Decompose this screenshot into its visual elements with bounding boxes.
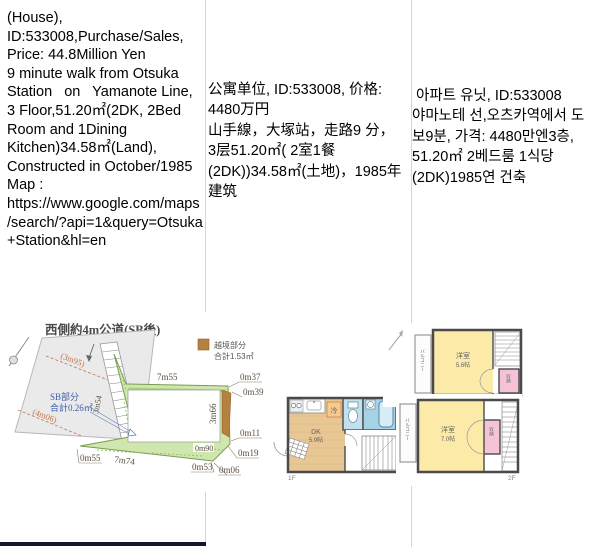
floor-plan-2f: バルコニー 収納 洋室 7.0帖 2F [396,394,522,486]
table-bottom-border [0,542,206,546]
setback-total: 合計0.26㎡ [50,402,93,413]
balcony-3f-label: バルコニー [420,349,426,372]
stairs-2f [502,402,518,471]
cell-description-chinese: 公寓单位, ID:533008, 价格: 4480万円 山手線，大塚站，走路9 … [208,80,409,202]
dk-size: 5.9帖 [309,436,323,444]
room-3f-label: 洋室 [456,351,470,360]
cell-description-korean: 아파트 유닛, ID:533008 야마노테 선,오츠카역에서 도 보9분, 가… [412,86,613,188]
measure-0m90: 0m90 [195,444,213,453]
measure-0m39: 0m39 [243,387,264,397]
fridge-label: 冷 [331,406,338,415]
property-listing-table: (House), ID:533008,Purchase/Sales, Price… [0,0,616,547]
closet-2f-label: 収納 [489,426,495,438]
floor2-label: 2F [508,475,516,482]
measure-0m06: 0m06 [219,465,240,475]
measure-0m55: 0m55 [80,453,101,463]
measure-0m37: 0m37 [240,372,261,382]
setback-label: SB部分 [50,391,79,402]
toilet-tank [348,402,358,408]
measure-0m19: 0m19 [238,448,259,458]
measure-top: 7m55 [157,372,178,382]
measure-right: 3m66 [208,403,218,424]
floor1-label: 1F [288,475,296,482]
closet-3f-label: 収納 [506,373,512,385]
room-2f-size: 7.0帖 [441,435,455,443]
room-2f-label: 洋室 [441,425,455,434]
closet-2f [484,420,500,454]
room-3f-size: 5.6帖 [456,361,470,369]
land-plot-diagram: 西側約4m公道(SB後) 越境部分 合計1.53㎡ (3m95) (4m06) [2,312,306,492]
toilet-icon [349,410,358,423]
encroachment-label: 越境部分 [214,340,246,350]
measure-0m11: 0m11 [240,428,260,438]
cell-description-english: (House), ID:533008,Purchase/Sales, Price… [7,9,206,251]
stairs-1f [362,436,396,470]
encroachment-swatch [198,339,209,350]
encroachment-total: 合計1.53㎡ [214,351,254,361]
building-footprint [128,390,220,442]
balcony-2f-label: バルコニー [405,418,411,441]
measure-0m53: 0m53 [192,462,213,472]
kitchen-counter [289,399,325,413]
stairs-3f [495,332,520,366]
dk-label: DK [311,429,321,436]
